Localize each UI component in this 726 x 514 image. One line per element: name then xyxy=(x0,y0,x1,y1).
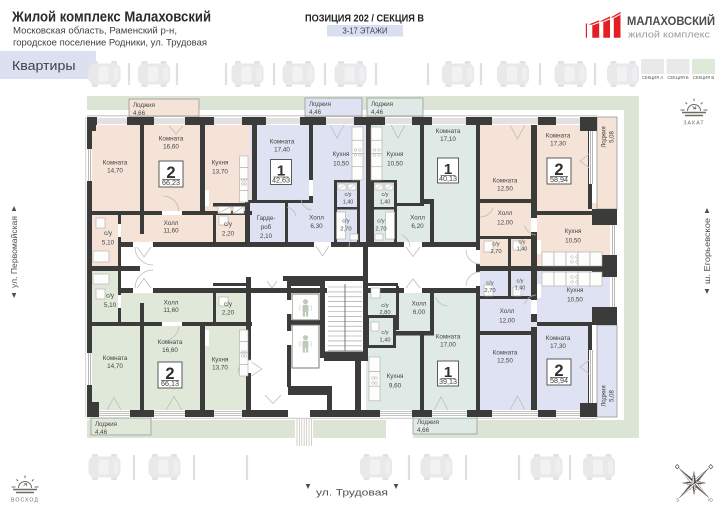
svg-text:З: З xyxy=(676,498,679,503)
svg-text:ПОЗИЦИЯ 202 / СЕКЦИЯ В: ПОЗИЦИЯ 202 / СЕКЦИЯ В xyxy=(305,13,424,25)
svg-text:17,10: 17,10 xyxy=(440,136,456,143)
svg-text:40,13: 40,13 xyxy=(439,174,457,183)
svg-text:с/у: с/у xyxy=(345,192,352,198)
svg-text:ул. Трудовая: ул. Трудовая xyxy=(316,488,388,498)
svg-text:Комната: Комната xyxy=(493,350,518,357)
svg-text:Холл: Холл xyxy=(412,301,427,308)
svg-text:2,70: 2,70 xyxy=(484,288,495,294)
svg-text:12,50: 12,50 xyxy=(497,186,513,193)
svg-text:4,46: 4,46 xyxy=(309,109,322,116)
svg-text:Московская область, Раменский: Московская область, Раменский р-н, xyxy=(13,26,177,37)
svg-text:с/у: с/у xyxy=(224,221,233,228)
svg-text:1,40: 1,40 xyxy=(380,338,391,344)
svg-text:12,00: 12,00 xyxy=(499,318,515,325)
svg-text:2,20: 2,20 xyxy=(222,231,235,238)
svg-text:роб: роб xyxy=(261,224,272,231)
svg-text:66,23: 66,23 xyxy=(162,178,180,187)
svg-text:6,00: 6,00 xyxy=(413,309,426,316)
svg-text:с/у: с/у xyxy=(517,279,524,285)
svg-text:1,40: 1,40 xyxy=(515,286,526,292)
svg-text:с/у: с/у xyxy=(104,230,113,237)
svg-text:Лоджия: Лоджия xyxy=(371,101,393,108)
svg-text:Лоджия: Лоджия xyxy=(309,101,331,108)
svg-text:2,70: 2,70 xyxy=(375,227,386,233)
svg-text:11,60: 11,60 xyxy=(163,307,179,314)
svg-text:Холл: Холл xyxy=(498,210,513,217)
svg-text:Холл: Холл xyxy=(410,215,425,222)
svg-text:1,40: 1,40 xyxy=(517,247,528,253)
svg-text:2,70: 2,70 xyxy=(340,227,351,233)
svg-text:6,30: 6,30 xyxy=(310,223,323,230)
svg-text:с/у: с/у xyxy=(486,281,494,287)
svg-text:Гарде-: Гарде- xyxy=(257,215,276,222)
svg-text:9,60: 9,60 xyxy=(389,383,402,390)
svg-text:2,20: 2,20 xyxy=(222,310,235,317)
svg-text:с/у: с/у xyxy=(519,240,526,246)
svg-text:с/у: с/у xyxy=(381,303,389,309)
svg-text:10,50: 10,50 xyxy=(567,297,583,304)
svg-text:5,08: 5,08 xyxy=(610,390,616,402)
svg-text:Квартиры: Квартиры xyxy=(12,59,76,73)
svg-text:Комната: Комната xyxy=(436,128,461,135)
svg-text:1,40: 1,40 xyxy=(343,200,354,206)
svg-text:58,94: 58,94 xyxy=(550,376,568,385)
svg-text:Холл: Холл xyxy=(309,215,324,222)
svg-text:Комната: Комната xyxy=(159,136,184,143)
svg-text:13,70: 13,70 xyxy=(212,364,228,371)
svg-text:СЕКЦИЯ В: СЕКЦИЯ В xyxy=(693,75,715,80)
svg-text:Кухня: Кухня xyxy=(333,151,350,158)
svg-text:12,00: 12,00 xyxy=(497,220,513,227)
svg-text:5,10: 5,10 xyxy=(104,302,117,309)
svg-text:1,40: 1,40 xyxy=(380,200,391,206)
svg-text:с/у: с/у xyxy=(106,293,115,300)
svg-text:Лоджия: Лоджия xyxy=(602,385,608,406)
svg-text:Комната: Комната xyxy=(103,160,128,167)
svg-text:с/у: с/у xyxy=(492,242,500,248)
svg-text:58,94: 58,94 xyxy=(550,175,568,184)
svg-text:10,50: 10,50 xyxy=(387,161,403,168)
svg-text:17,30: 17,30 xyxy=(550,343,566,350)
svg-text:6,20: 6,20 xyxy=(411,223,424,230)
svg-text:2,80: 2,80 xyxy=(379,310,390,316)
svg-text:с/у: с/у xyxy=(377,219,385,225)
svg-text:2,70: 2,70 xyxy=(490,249,501,255)
svg-text:10,50: 10,50 xyxy=(333,161,349,168)
svg-text:Лоджия: Лоджия xyxy=(133,102,155,109)
svg-text:Комната: Комната xyxy=(103,355,128,362)
svg-text:5,10: 5,10 xyxy=(102,240,115,247)
svg-text:16,60: 16,60 xyxy=(163,143,179,150)
svg-text:Кухня: Кухня xyxy=(387,151,404,158)
svg-text:СЕКЦИЯ А: СЕКЦИЯ А xyxy=(642,75,664,80)
svg-text:Кухня: Кухня xyxy=(567,287,584,294)
svg-text:Жилой комплекс Малаховский: Жилой комплекс Малаховский xyxy=(11,10,211,26)
svg-text:2,10: 2,10 xyxy=(260,233,273,240)
svg-text:Комната: Комната xyxy=(158,339,183,346)
svg-text:3-17 ЭТАЖИ: 3-17 ЭТАЖИ xyxy=(343,27,388,36)
svg-text:11,60: 11,60 xyxy=(163,228,179,235)
svg-text:17,40: 17,40 xyxy=(274,147,290,154)
svg-text:Комната: Комната xyxy=(436,334,461,341)
svg-text:39,13: 39,13 xyxy=(439,377,457,386)
svg-text:14,70: 14,70 xyxy=(107,363,123,370)
svg-text:с/у: с/у xyxy=(382,192,389,198)
svg-text:4,46: 4,46 xyxy=(371,109,384,116)
svg-text:5,08: 5,08 xyxy=(610,131,616,143)
svg-text:ул. Первомайская: ул. Первомайская xyxy=(10,216,19,288)
svg-text:СЕКЦИЯ Б: СЕКЦИЯ Б xyxy=(667,75,689,80)
svg-text:4,46: 4,46 xyxy=(95,429,108,436)
svg-text:с/у: с/у xyxy=(342,219,350,225)
svg-text:Кухня: Кухня xyxy=(212,160,229,167)
svg-text:городское поселение Родники, у: городское поселение Родники, ул. Трудова… xyxy=(13,38,207,49)
svg-text:Комната: Комната xyxy=(493,178,518,185)
svg-text:66,13: 66,13 xyxy=(161,379,179,388)
svg-text:жилой комплекс: жилой комплекс xyxy=(628,30,710,41)
svg-text:ВОСХОД: ВОСХОД xyxy=(11,498,39,504)
svg-text:Ю: Ю xyxy=(708,498,713,503)
svg-text:17,00: 17,00 xyxy=(440,342,456,349)
svg-text:Холл: Холл xyxy=(164,220,179,227)
svg-text:14,70: 14,70 xyxy=(107,168,123,175)
svg-text:Кухня: Кухня xyxy=(212,357,229,364)
svg-text:Комната: Комната xyxy=(546,335,571,342)
svg-text:Комната: Комната xyxy=(270,139,295,146)
svg-text:Лоджия: Лоджия xyxy=(417,419,439,426)
svg-text:Лоджия: Лоджия xyxy=(95,421,117,428)
svg-text:МАЛАХОВСКИЙ: МАЛАХОВСКИЙ xyxy=(627,14,715,28)
svg-text:с/у: с/у xyxy=(224,301,233,308)
svg-text:10,50: 10,50 xyxy=(565,238,581,245)
svg-text:ЗАКАТ: ЗАКАТ xyxy=(683,121,704,127)
svg-text:Холл: Холл xyxy=(164,300,179,307)
svg-text:Кухня: Кухня xyxy=(565,228,582,235)
svg-text:Кухня: Кухня xyxy=(387,373,404,380)
svg-text:Комната: Комната xyxy=(546,133,571,140)
svg-text:12,50: 12,50 xyxy=(497,358,513,365)
svg-text:42,63: 42,63 xyxy=(272,176,290,185)
svg-text:с/у: с/у xyxy=(381,330,388,336)
svg-text:Холл: Холл xyxy=(500,308,515,315)
svg-text:17,30: 17,30 xyxy=(550,141,566,148)
svg-text:ш. Егорьевское: ш. Егорьевское xyxy=(703,218,712,284)
svg-text:4,66: 4,66 xyxy=(417,427,430,434)
svg-text:Лоджия: Лоджия xyxy=(602,126,608,147)
svg-text:16,60: 16,60 xyxy=(162,347,178,354)
svg-text:13,70: 13,70 xyxy=(212,169,228,176)
